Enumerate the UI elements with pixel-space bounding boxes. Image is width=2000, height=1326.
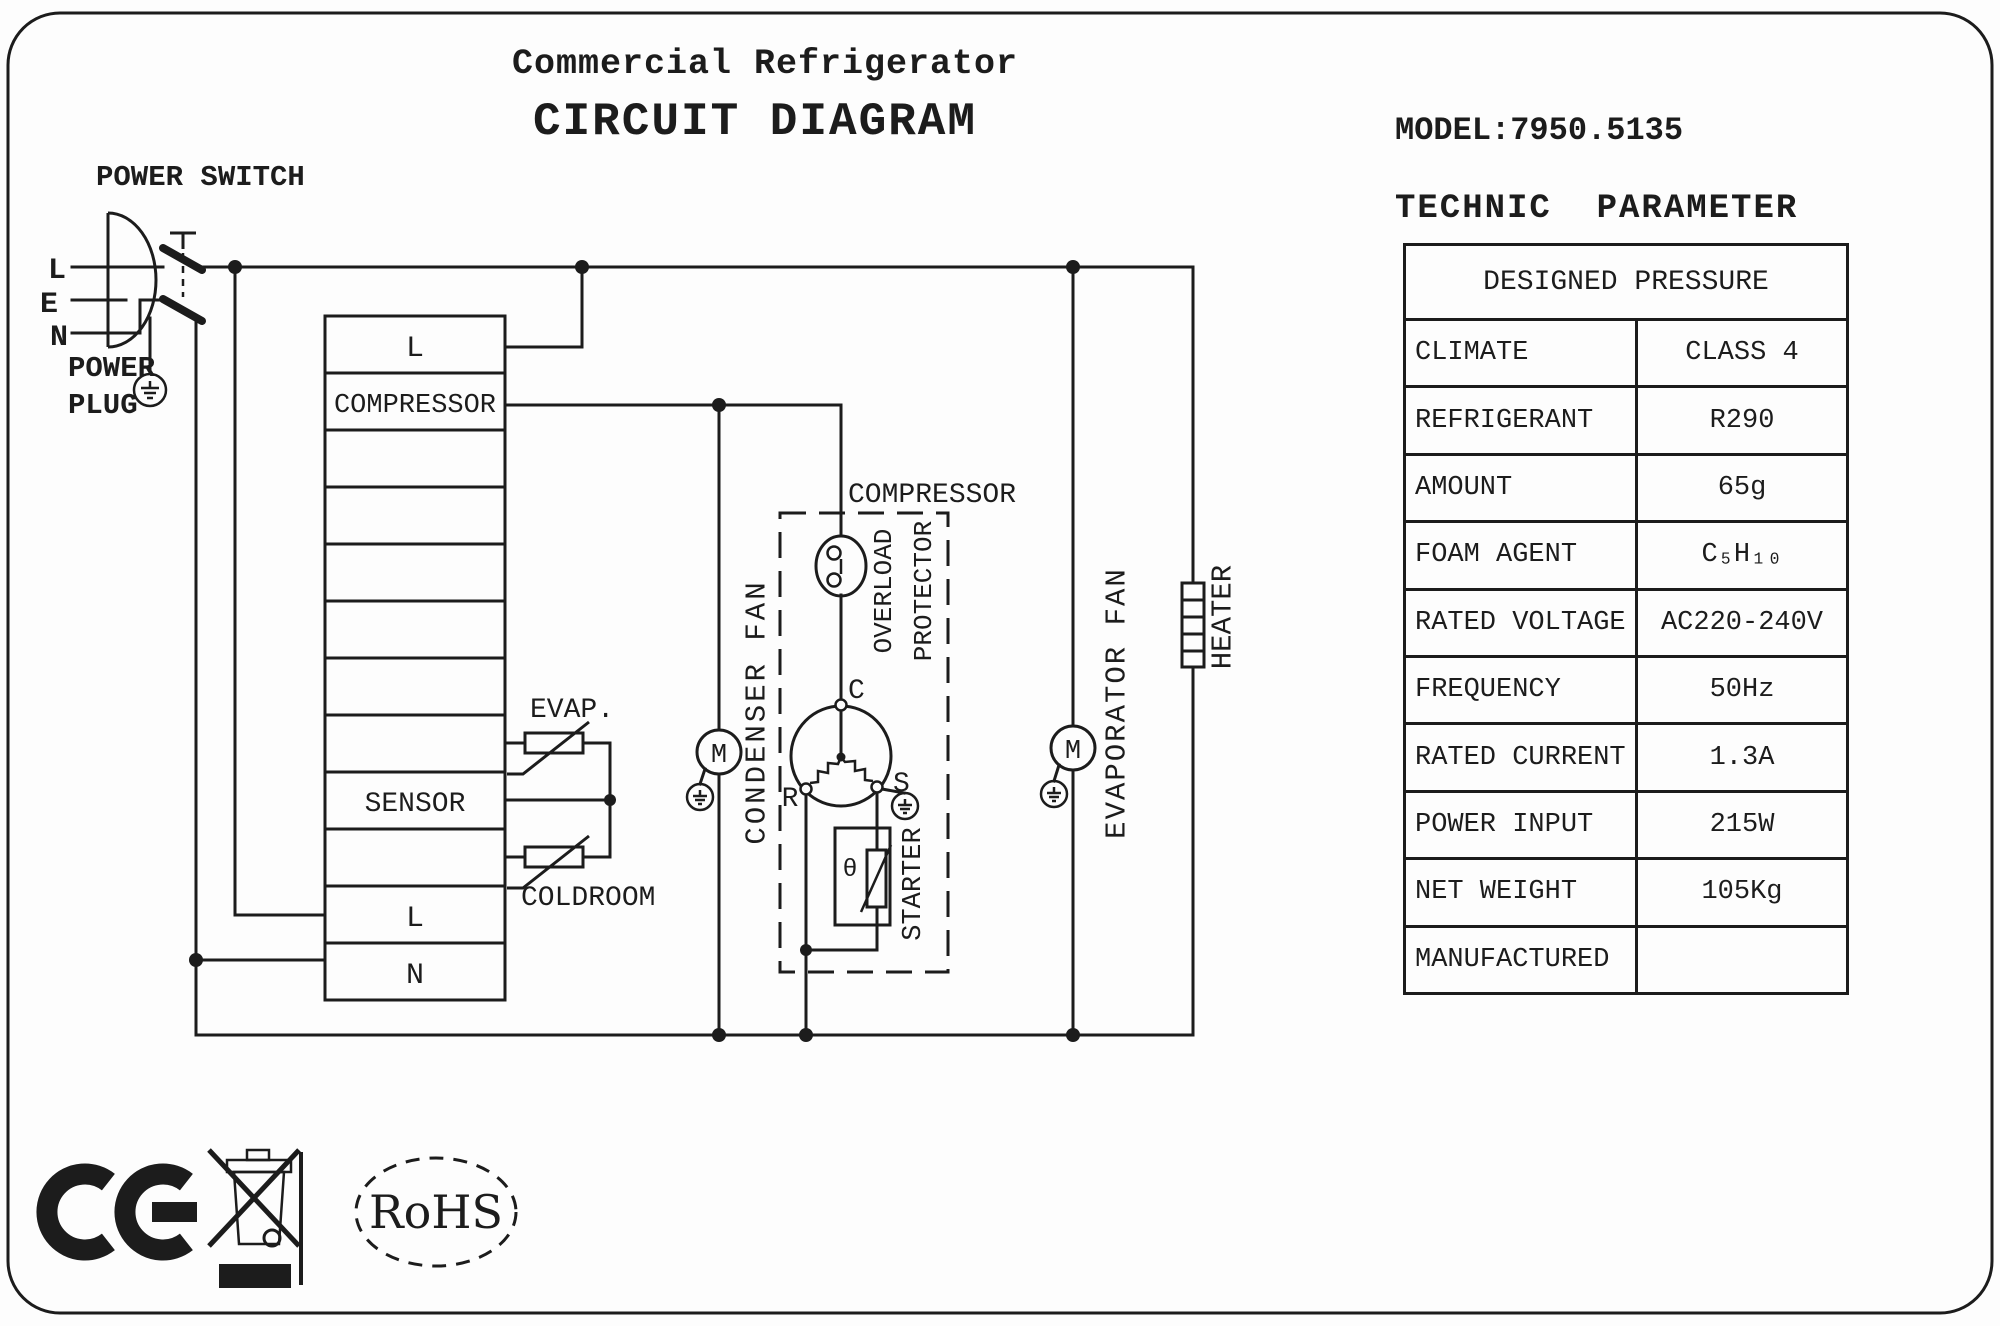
pin-e-label: E xyxy=(40,288,58,322)
model-number: MODEL:7950.5135 xyxy=(1395,112,1683,149)
pin-n-label: N xyxy=(50,321,68,355)
table-row: RATED VOLTAGE AC220-240V xyxy=(1406,591,1846,658)
power-switch-symbol xyxy=(163,233,202,321)
row-value: 215W xyxy=(1638,793,1846,857)
starter-theta: θ xyxy=(842,855,857,884)
table-row: REFRIGERANT R290 xyxy=(1406,388,1846,455)
power-plug-label-2: PLUG xyxy=(68,389,138,422)
table-row: RATED CURRENT 1.3A xyxy=(1406,725,1846,792)
row-label: CLIMATE xyxy=(1406,321,1638,385)
table-row: CLIMATE CLASS 4 xyxy=(1406,321,1846,388)
coldroom-sensor-label: COLDROOM xyxy=(521,883,655,914)
table-row: FOAM AGENT C₅H₁₀ xyxy=(1406,523,1846,590)
row-label: AMOUNT xyxy=(1406,456,1638,520)
row-label: NET WEIGHT xyxy=(1406,860,1638,924)
row-value: CLASS 4 xyxy=(1638,321,1846,385)
row-label: FREQUENCY xyxy=(1406,658,1638,722)
circuit-wires xyxy=(72,267,1193,1035)
diagram-title-line2: CIRCUIT DIAGRAM xyxy=(365,96,1145,148)
rohs-label: RoHS xyxy=(369,1185,503,1239)
row-label: MANUFACTURED xyxy=(1406,928,1638,992)
table-row: NET WEIGHT 105Kg xyxy=(1406,860,1846,927)
evap-thermistor xyxy=(507,722,589,774)
junction-dots xyxy=(189,260,1080,1042)
table-row: FREQUENCY 50Hz xyxy=(1406,658,1846,725)
row-value xyxy=(1638,928,1846,992)
row-value: 65g xyxy=(1638,456,1846,520)
technic-parameter-table: DESIGNED PRESSURE CLIMATE CLASS 4 REFRIG… xyxy=(1403,243,1849,995)
motor-terminal-s: S xyxy=(893,769,910,800)
row-label: RATED CURRENT xyxy=(1406,725,1638,789)
heater-label: HEATER xyxy=(1207,565,1240,669)
rohs-badge: RoHS xyxy=(356,1158,516,1266)
motor-terminal-c: C xyxy=(848,676,865,707)
row-value: C₅H₁₀ xyxy=(1638,523,1846,587)
motor-terminal-r: R xyxy=(782,784,799,815)
terminal-row11-label: L xyxy=(406,902,424,936)
row-label: REFRIGERANT xyxy=(1406,388,1638,452)
circuit-diagram-page: POWER SWITCH L E N POWER PLUG L COMPRESS… xyxy=(0,0,2000,1326)
heater-symbol xyxy=(1182,583,1204,667)
terminal-row1-label: L xyxy=(406,332,424,366)
table-header-designed-pressure: DESIGNED PRESSURE xyxy=(1406,246,1846,321)
overload-protector-symbol xyxy=(816,536,866,596)
table-row: MANUFACTURED xyxy=(1406,928,1846,992)
starter-label: STARTER xyxy=(899,827,929,940)
evaporator-motor-m: M xyxy=(1065,737,1081,767)
overload-label-2: PROTECTOR xyxy=(909,521,939,661)
row-value: AC220-240V xyxy=(1638,591,1846,655)
power-switch-label: POWER SWITCH xyxy=(96,161,305,194)
terminal-row9-label: SENSOR xyxy=(365,789,466,820)
pin-l-label: L xyxy=(48,254,66,288)
row-value: 105Kg xyxy=(1638,860,1846,924)
terminal-row12-label: N xyxy=(406,959,424,993)
row-value: R290 xyxy=(1638,388,1846,452)
overload-label-1: OVERLOAD xyxy=(869,529,899,654)
row-label: POWER INPUT xyxy=(1406,793,1638,857)
ce-mark-icon xyxy=(47,1174,197,1250)
earth-symbol-condenser-fan xyxy=(687,784,713,810)
row-value: 1.3A xyxy=(1638,725,1846,789)
condenser-motor-m: M xyxy=(711,741,727,771)
coldroom-thermistor xyxy=(507,836,589,888)
technic-parameter-heading: TECHNIC PARAMETER xyxy=(1395,190,1798,228)
diagram-title-line1: Commercial Refrigerator xyxy=(365,44,1165,84)
table-row: AMOUNT 65g xyxy=(1406,456,1846,523)
evaporator-fan-label: EVAPORATOR FAN xyxy=(1101,567,1134,839)
terminal-row2-label: COMPRESSOR xyxy=(334,391,496,421)
weee-bin-icon xyxy=(209,1150,301,1288)
power-plug-label-1: POWER xyxy=(68,352,156,385)
row-label: RATED VOLTAGE xyxy=(1406,591,1638,655)
row-label: FOAM AGENT xyxy=(1406,523,1638,587)
evap-sensor-label: EVAP. xyxy=(530,695,614,726)
table-row: POWER INPUT 215W xyxy=(1406,793,1846,860)
compressor-box-label: COMPRESSOR xyxy=(848,480,1016,511)
earth-symbol-evaporator-fan xyxy=(1041,781,1067,807)
condenser-fan-label: CONDENSER FAN xyxy=(741,579,774,844)
row-value: 50Hz xyxy=(1638,658,1846,722)
